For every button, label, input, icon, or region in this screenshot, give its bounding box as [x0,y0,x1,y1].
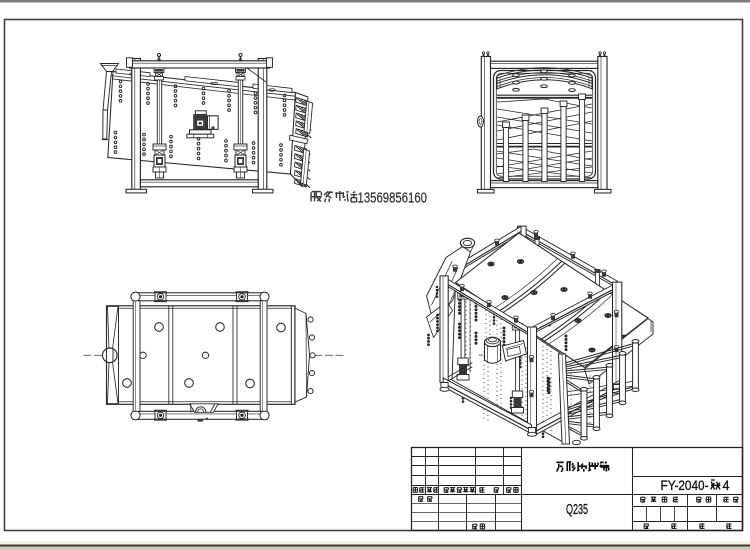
svg-text:Q235: Q235 [566,502,588,518]
svg-text:13569856160: 13569856160 [358,189,428,206]
svg-text:FY-2040-: FY-2040- [661,477,709,493]
svg-text:4: 4 [723,477,730,493]
